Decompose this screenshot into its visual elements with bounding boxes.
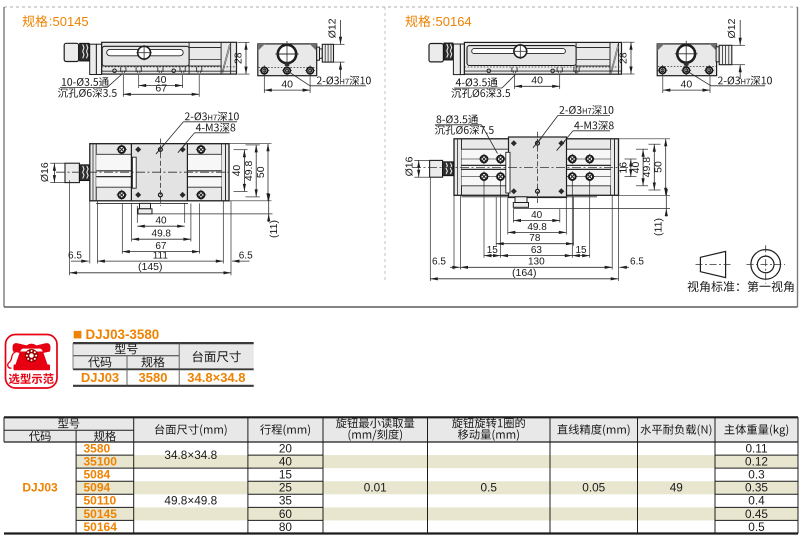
- svg-text:50110: 50110: [84, 494, 117, 508]
- svg-text:3580: 3580: [139, 370, 168, 385]
- svg-text:49: 49: [670, 481, 683, 495]
- svg-text:130: 130: [528, 257, 545, 268]
- svg-text:15: 15: [487, 245, 499, 256]
- svg-text:0.01: 0.01: [364, 481, 387, 495]
- svg-text:28: 28: [618, 52, 630, 64]
- svg-text:DJJ03: DJJ03: [22, 481, 58, 495]
- svg-text:25: 25: [279, 481, 293, 495]
- svg-text:(145): (145): [138, 261, 163, 273]
- svg-text:Ø16: Ø16: [403, 156, 415, 176]
- svg-text:50: 50: [653, 161, 665, 173]
- svg-text:50164: 50164: [436, 14, 472, 29]
- svg-text:40: 40: [231, 165, 243, 177]
- svg-text:0.12: 0.12: [745, 455, 768, 469]
- svg-text:111: 111: [153, 251, 169, 262]
- svg-text:35100: 35100: [84, 455, 118, 469]
- svg-text:40: 40: [279, 455, 293, 469]
- svg-text:49.8: 49.8: [152, 229, 172, 240]
- svg-text:49.8×49.8: 49.8×49.8: [164, 494, 217, 508]
- svg-text:60: 60: [279, 507, 293, 521]
- svg-text:0.35: 0.35: [745, 481, 768, 495]
- svg-text:Ø16: Ø16: [39, 162, 51, 182]
- svg-text:0.3: 0.3: [748, 468, 765, 482]
- svg-text:40: 40: [531, 210, 543, 221]
- svg-text:Ø12: Ø12: [327, 18, 339, 38]
- svg-text:(164): (164): [512, 267, 537, 279]
- svg-text:40: 40: [155, 216, 167, 227]
- svg-text:3580: 3580: [84, 441, 111, 455]
- svg-text:(11): (11): [653, 218, 665, 236]
- svg-text:50: 50: [255, 166, 267, 178]
- svg-text:80: 80: [279, 520, 293, 534]
- svg-text:5094: 5094: [84, 481, 111, 495]
- svg-text:(11): (11): [268, 220, 280, 238]
- svg-text:15: 15: [575, 245, 587, 256]
- svg-text:0.11: 0.11: [745, 441, 767, 455]
- svg-text:20: 20: [279, 441, 293, 455]
- svg-text:40: 40: [630, 162, 642, 174]
- svg-text:0.05: 0.05: [582, 481, 605, 495]
- svg-text:0.45: 0.45: [745, 507, 768, 521]
- svg-text:50164: 50164: [84, 520, 118, 534]
- svg-text:6.5: 6.5: [239, 251, 253, 262]
- svg-text:40: 40: [281, 79, 293, 91]
- svg-text:6.5: 6.5: [432, 257, 446, 268]
- svg-text:6.5: 6.5: [68, 251, 82, 262]
- svg-text:DJJ03-3580: DJJ03-3580: [86, 327, 160, 342]
- svg-text:0.5: 0.5: [481, 481, 498, 495]
- svg-text:67: 67: [155, 83, 167, 95]
- svg-text:34.8×34.8: 34.8×34.8: [164, 448, 217, 462]
- svg-text:50145: 50145: [53, 14, 89, 29]
- svg-text:5084: 5084: [84, 468, 111, 482]
- svg-text:6.5: 6.5: [630, 257, 644, 268]
- svg-text:78: 78: [529, 233, 541, 244]
- svg-text:16: 16: [618, 162, 630, 174]
- svg-text:40: 40: [681, 79, 693, 91]
- svg-text:Ø12: Ø12: [726, 18, 738, 38]
- svg-text:40: 40: [531, 75, 543, 87]
- svg-text:49.8: 49.8: [243, 161, 255, 182]
- svg-text:50145: 50145: [84, 507, 118, 521]
- svg-text:0.5: 0.5: [748, 520, 765, 534]
- svg-text:49.8: 49.8: [641, 157, 653, 178]
- svg-text:63: 63: [531, 245, 543, 256]
- svg-text:DJJ03: DJJ03: [81, 370, 119, 385]
- svg-text:34.8×34.8: 34.8×34.8: [187, 370, 245, 385]
- svg-text:15: 15: [279, 468, 293, 482]
- svg-text:35: 35: [279, 494, 293, 508]
- svg-text:0.4: 0.4: [748, 494, 765, 508]
- svg-text:28: 28: [233, 52, 245, 64]
- svg-text:49.8: 49.8: [527, 222, 547, 233]
